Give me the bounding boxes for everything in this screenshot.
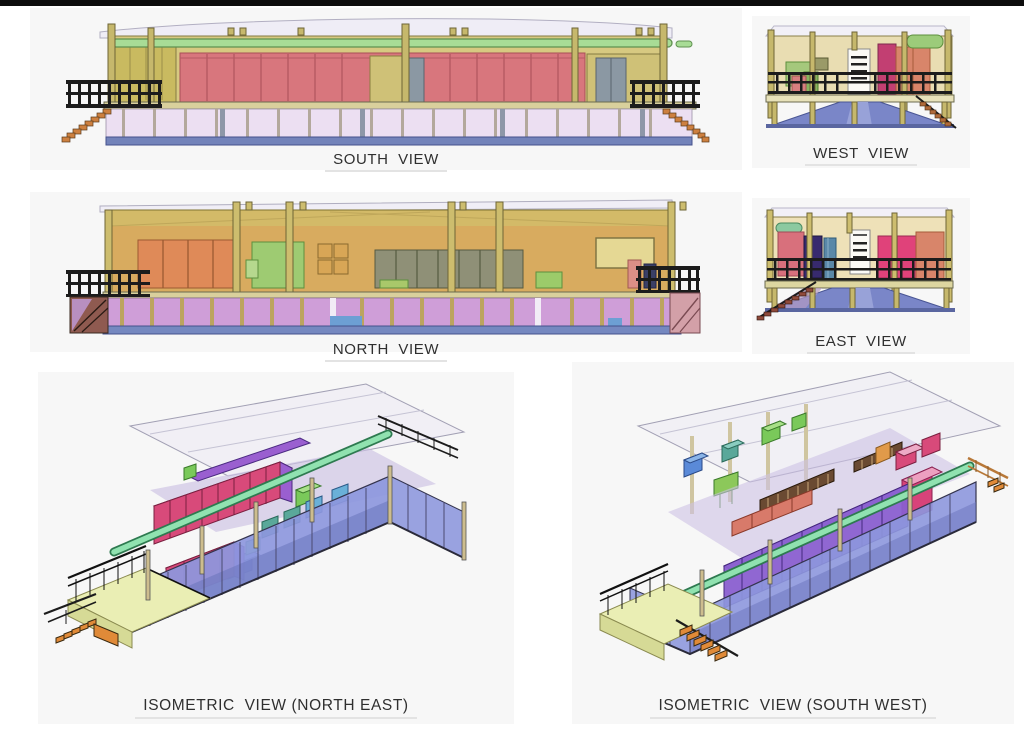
- roof: [100, 19, 672, 38]
- isometric-sw-panel: ISOMETRIC VIEW (SOUTH WEST): [572, 362, 1014, 724]
- south-view-label: SOUTH VIEW: [325, 151, 447, 172]
- east-view-label: EAST VIEW: [807, 333, 915, 354]
- green-box: [246, 242, 304, 288]
- east-view-drawing: [752, 198, 970, 330]
- page-canvas: SOUTH VIEW: [0, 0, 1024, 730]
- north-view-drawing: [30, 192, 742, 338]
- doorway: [850, 230, 870, 274]
- north-view-panel: NORTH VIEW: [30, 192, 742, 352]
- top-black-bar: [0, 0, 1024, 6]
- isometric-ne-drawing: [38, 372, 514, 694]
- roof: [765, 208, 954, 217]
- deck-band: [766, 95, 954, 102]
- south-view-drawing: [30, 8, 742, 148]
- orange-panels: [138, 240, 238, 288]
- west-view-drawing: [752, 16, 970, 142]
- stairs-left: [62, 109, 111, 142]
- west-view-label: WEST VIEW: [805, 145, 917, 166]
- isometric-ne-label: ISOMETRIC VIEW (NORTH EAST): [135, 697, 416, 719]
- floor-deck: [103, 292, 683, 298]
- isometric-sw-drawing: [572, 362, 1014, 694]
- lower-floor: [103, 298, 681, 334]
- isometric-sw-label: ISOMETRIC VIEW (SOUTH WEST): [650, 697, 935, 719]
- floor-deck: [104, 102, 696, 109]
- doorway: [848, 49, 870, 94]
- lower-floor: [106, 109, 692, 145]
- south-view-panel: SOUTH VIEW: [30, 8, 742, 170]
- stairs-left: [70, 297, 108, 333]
- east-view-panel: EAST VIEW: [752, 198, 970, 354]
- stairs-right: [670, 293, 700, 333]
- deck-band: [765, 281, 953, 288]
- north-view-label: NORTH VIEW: [325, 341, 447, 362]
- west-view-panel: WEST VIEW: [752, 16, 970, 168]
- isometric-ne-panel: ISOMETRIC VIEW (NORTH EAST): [38, 372, 514, 724]
